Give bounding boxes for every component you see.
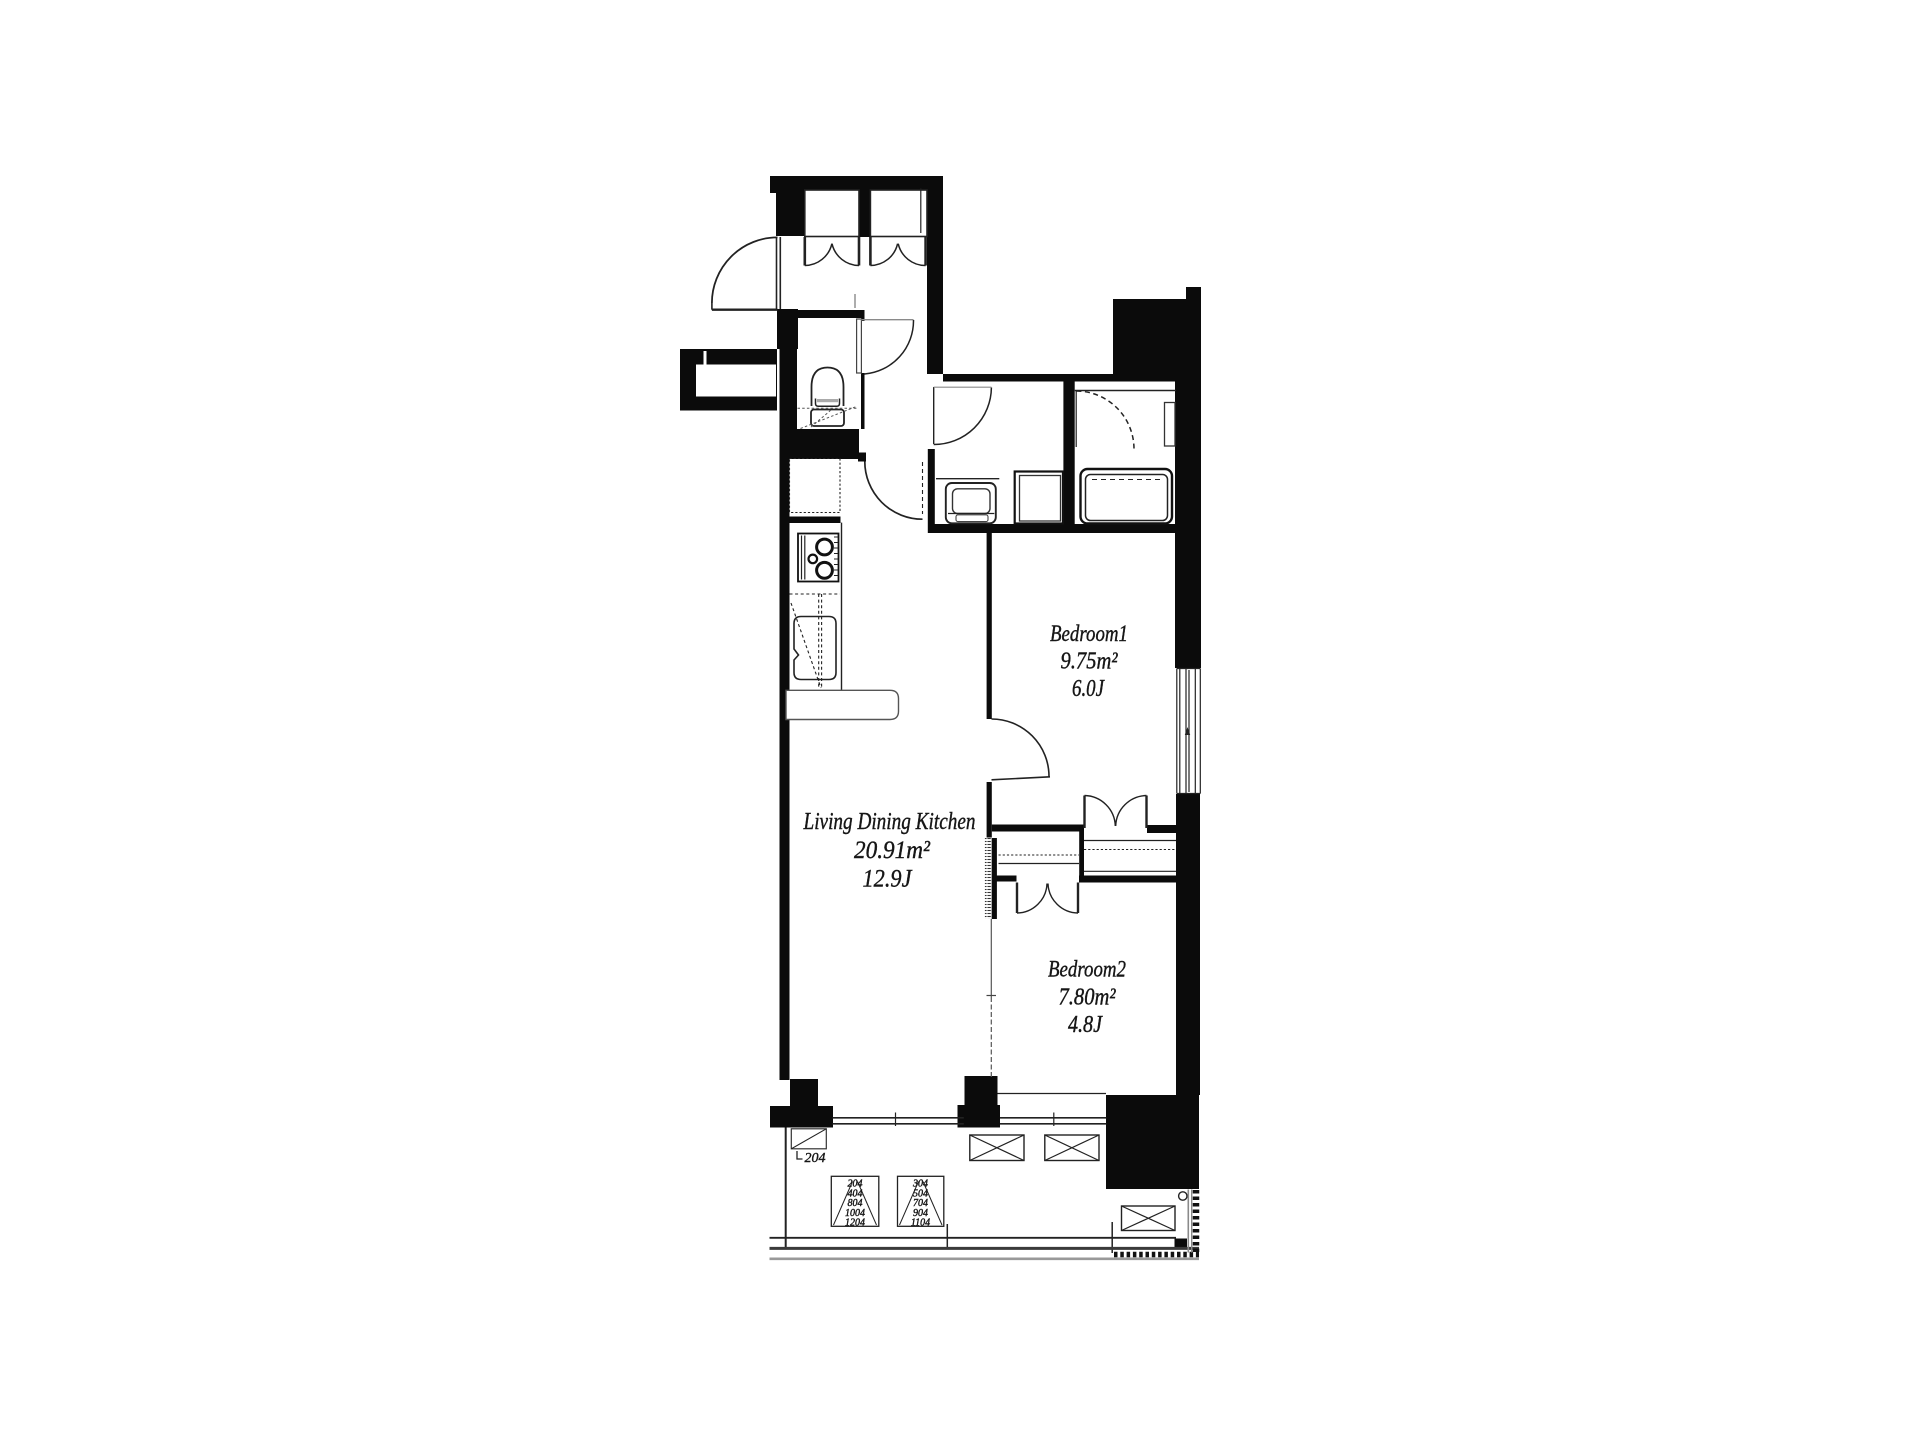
svg-text:204: 204 <box>805 1151 826 1166</box>
svg-text:9.75m²: 9.75m² <box>1061 649 1119 675</box>
svg-text:20.91m²: 20.91m² <box>854 837 930 864</box>
svg-text:Bedroom2: Bedroom2 <box>1048 957 1126 982</box>
svg-text:1204: 1204 <box>845 1218 865 1229</box>
svg-text:4.8J: 4.8J <box>1068 1012 1103 1038</box>
svg-text:1104: 1104 <box>911 1218 930 1229</box>
svg-text:Living Dining Kitchen: Living Dining Kitchen <box>803 809 976 835</box>
svg-text:6.0J: 6.0J <box>1072 676 1105 702</box>
svg-text:7.80m²: 7.80m² <box>1059 985 1117 1011</box>
svg-text:Bedroom1: Bedroom1 <box>1050 621 1128 646</box>
svg-text:12.9J: 12.9J <box>863 866 914 893</box>
